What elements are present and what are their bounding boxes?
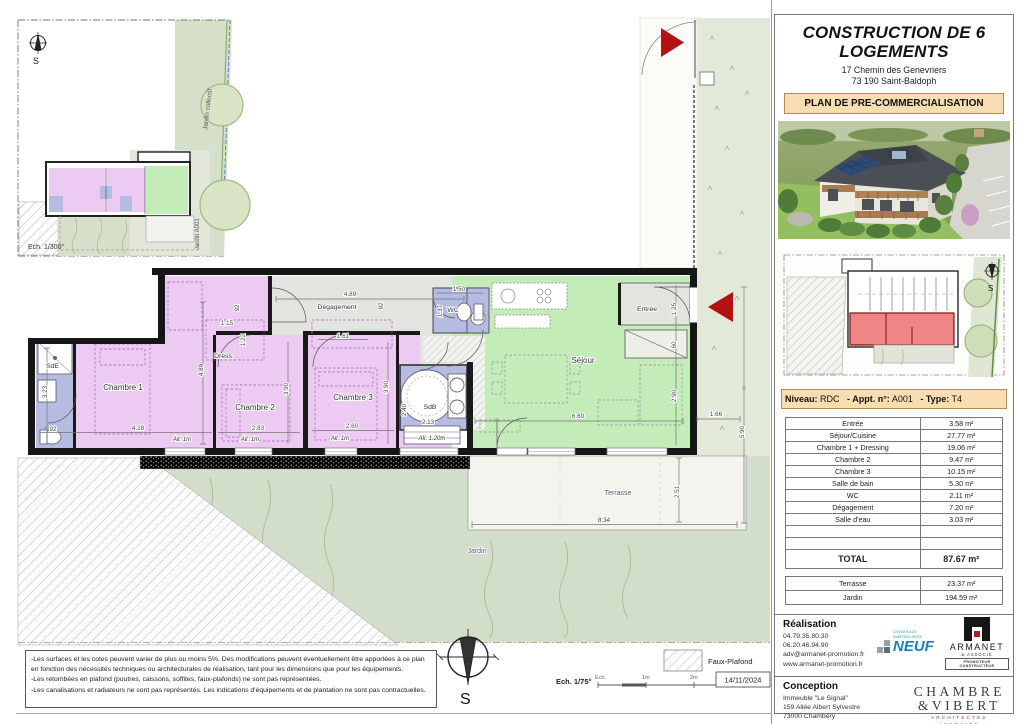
dim-label: 2.13 — [422, 419, 435, 426]
dim-label: 6.60 — [572, 413, 585, 420]
appt-label: - Appt. n°: — [847, 394, 890, 404]
room-name-cell: Chambre 3 — [786, 466, 921, 478]
table-row: Séjour/Cuisine27.77 m² — [786, 430, 1003, 442]
conception-section: Conception Immeuble "Le Signal" 159 Allé… — [775, 676, 1013, 724]
room-name-cell: WC — [786, 490, 921, 502]
room-label-wc: WC — [447, 307, 458, 314]
dim-label: 1.66 — [710, 411, 723, 418]
room-area-cell: 19.06 m² — [920, 442, 1002, 454]
faux-plafond-swatch — [664, 650, 702, 671]
table-row: Salle de bain5.30 m² — [786, 478, 1003, 490]
dim-label: 8.34 — [598, 517, 611, 524]
tree-icon — [200, 180, 250, 230]
neuf-logo-text: NEUF — [893, 640, 934, 654]
table-row: Chambre 1 + Dressing19.06 m² — [786, 442, 1003, 454]
areas-table: Entrée3.58 m² Séjour/Cuisine27.77 m² Cha… — [785, 417, 1003, 569]
address-line2: 73 190 Saint-Baldoph — [775, 76, 1013, 87]
floor-plan-drawing: S Jardin collectif Jardin A001 Ech. 1/30… — [0, 0, 772, 724]
room-area-cell: 3.03 m² — [920, 514, 1002, 526]
dim-label: 3.90 — [283, 382, 290, 395]
site-compass-label: S — [33, 56, 39, 66]
total-label-cell: TOTAL — [786, 550, 921, 569]
room-area-cell: 9.47 m² — [920, 454, 1002, 466]
allege-label: All. 1.20m — [418, 436, 446, 442]
address-line1: 17 Chemin des Genevriers — [775, 65, 1013, 76]
room-label-sdb: SdB — [424, 404, 437, 411]
room-name-cell: Entrée — [786, 418, 921, 430]
project-title-line2: LOGEMENTS — [775, 42, 1013, 61]
project-title-line1: CONSTRUCTION DE 6 — [775, 23, 1013, 42]
dim-label: 4.28 — [132, 425, 145, 432]
table-row: Chambre 29.47 m² — [786, 454, 1003, 466]
niveau-label: Niveau: — [785, 394, 818, 404]
type-value: T4 — [952, 394, 963, 404]
armanet-sub: ASSOCIÉ — [967, 652, 993, 657]
extras-table: Terrasse23.37 m² Jardin194.59 m² — [785, 576, 1003, 605]
highlighted-unit — [850, 313, 954, 345]
armanet-logo-icon — [964, 617, 990, 641]
garden-area: Terrasse Jardin — [18, 456, 770, 645]
table-row: Entrée3.58 m² — [786, 418, 1003, 430]
room-name-cell: Chambre 2 — [786, 454, 921, 466]
room-label-chambre1: Chambre 1 — [103, 383, 143, 392]
plan-type-banner: PLAN DE PRE-COMMERCIALISATION — [784, 93, 1004, 114]
site-scale-label: Ech. 1/300° — [28, 243, 64, 251]
table-row: Terrasse23.37 m² — [786, 577, 1003, 591]
room-label-entree: Entrée — [637, 306, 657, 313]
table-empty-row — [786, 526, 1003, 538]
title-block-panel: CONSTRUCTION DE 6 LOGEMENTS 17 Chemin de… — [774, 14, 1014, 714]
neuf-logo-icon — [877, 639, 892, 653]
dim-label: 4.89 — [344, 291, 357, 298]
terrasse-label: Terrasse — [605, 490, 632, 497]
room-area-cell: 3.58 m² — [920, 418, 1002, 430]
table-row: Chambre 310.15 m² — [786, 466, 1003, 478]
extra-area-cell: 194.59 m² — [920, 591, 1002, 605]
dim-label: 5.90 — [739, 425, 746, 438]
site-plan: S Jardin collectif Jardin A001 Ech. 1/30… — [18, 20, 250, 256]
table-row: Salle d'eau3.03 m² — [786, 514, 1003, 526]
cv-logo-line1: CHAMBRE — [914, 685, 1005, 699]
compass-icon — [29, 32, 47, 54]
dim-label: 1.61 — [337, 333, 350, 340]
room-area-cell: 27.77 m² — [920, 430, 1002, 442]
dim-label: 2.51 — [674, 485, 681, 498]
room-label-sejour: Séjour — [571, 356, 594, 365]
armanet-logo-text: ARMANET — [945, 642, 1009, 652]
faux-plafond-label: Faux-Plafond — [708, 657, 753, 666]
scale-tick-label: 1m — [642, 675, 650, 681]
table-empty-row — [786, 538, 1003, 550]
dim-label: 4.89 — [198, 363, 205, 376]
dim-label: 1.50 — [453, 286, 466, 293]
note-line: -Les canalisations et radiateurs ne sont… — [31, 686, 431, 696]
neuf-logo: GÉNÉRALE IMMOBILIÈRE NEUF — [877, 629, 943, 653]
chambre-vibert-logo: CHAMBRE &VIBERT ARCHITECTES ASSOCIÉS — [914, 685, 1005, 724]
dim-label: 2.40 — [401, 403, 408, 416]
room-entree — [620, 283, 690, 325]
date-label: 14/11/2024 — [725, 676, 762, 685]
allege-label: All. 1m — [172, 437, 191, 443]
room-area-cell: 7.20 m² — [920, 502, 1002, 514]
room-label-dress: Dress. — [214, 353, 234, 360]
dim-label: 2.83 — [252, 425, 265, 432]
table-row: WC2.11 m² — [786, 490, 1003, 502]
project-title: CONSTRUCTION DE 6 LOGEMENTS — [775, 23, 1013, 61]
armanet-logo: ARMANET & ASSOCIÉ PROMOTEUR CONSTRUCTEUR — [945, 617, 1009, 670]
dim-label: 3.23 — [42, 385, 49, 398]
apartment-info-bar: Niveau: RDC - Appt. n°: A001 - Type: T4 — [781, 389, 1007, 409]
project-address: 17 Chemin des Genevriers 73 190 Saint-Ba… — [775, 65, 1013, 87]
room-label-chambre2: Chambre 2 — [235, 403, 275, 412]
room-name-cell: Salle d'eau — [786, 514, 921, 526]
dim-label: 2.60 — [346, 423, 359, 430]
dim-label: 1.37 — [437, 304, 444, 317]
appt-value: A001 — [892, 394, 913, 404]
compass-south-label: S — [460, 691, 471, 708]
scale-tick-label: Ech. — [595, 675, 606, 681]
table-row: Jardin194.59 m² — [786, 591, 1003, 605]
dim-label: 60 — [671, 341, 678, 349]
dim-label: 92 — [234, 304, 241, 312]
armanet-amp: & — [961, 652, 965, 657]
room-area-cell: 5.30 m² — [920, 478, 1002, 490]
room-label-degagement: Dégagement — [318, 304, 357, 311]
dim-label: 1.15 — [221, 320, 234, 327]
cv-logo-line2: &VIBERT — [914, 699, 1005, 713]
allege-label: All. 1m — [240, 437, 259, 443]
note-line: -Les surfaces et les cotes peuvent varie… — [31, 655, 431, 675]
extra-name-cell: Jardin — [786, 591, 921, 605]
allege-label: All. 1m — [330, 436, 349, 442]
jardin-label: Jardin — [467, 548, 486, 555]
key-plan: S — [778, 249, 1010, 381]
dim-label: 1.22 — [240, 333, 247, 346]
building-render — [778, 121, 1010, 239]
room-label-chambre3: Chambre 3 — [333, 393, 373, 402]
niveau-value: RDC — [820, 394, 840, 404]
room-area-cell: 10.15 m² — [920, 466, 1002, 478]
scale-tick-label: 2m — [690, 675, 698, 681]
total-value-cell: 87.67 m² — [920, 550, 1002, 569]
scale-label: Ech. 1/75° — [556, 677, 592, 686]
room-name-cell: Séjour/Cuisine — [786, 430, 921, 442]
room-name-cell: Chambre 1 + Dressing — [786, 442, 921, 454]
jardin-unit-label: Jardin A001 — [195, 218, 201, 250]
dim-label: 92 — [49, 426, 57, 433]
room-area-cell: 2.11 m² — [920, 490, 1002, 502]
armanet-tagline: PROMOTEUR CONSTRUCTEUR — [945, 658, 1009, 670]
table-row: Dégagement7.20 m² — [786, 502, 1003, 514]
room-label-sde: SdE — [46, 363, 59, 370]
room-name-cell: Dégagement — [786, 502, 921, 514]
dim-label: 1.25 — [671, 302, 678, 315]
extra-area-cell: 23.37 m² — [920, 577, 1002, 591]
plan-sheet: S Jardin collectif Jardin A001 Ech. 1/30… — [0, 0, 1024, 724]
keyplan-compass-label: S — [988, 284, 993, 293]
extra-name-cell: Terrasse — [786, 577, 921, 591]
dim-label: 92 — [378, 302, 385, 310]
realisation-section: Réalisation 04.79.35.80.30 06.20.46.94.9… — [775, 614, 1013, 676]
dim-label: 3.90 — [383, 380, 390, 393]
note-line: -Les retombées en plafond (poutres, cais… — [31, 675, 431, 685]
room-name-cell: Salle de bain — [786, 478, 921, 490]
type-label: - Type: — [920, 394, 949, 404]
areas-table-wrap: Entrée3.58 m² Séjour/Cuisine27.77 m² Cha… — [785, 417, 1003, 605]
notes-box: -Les surfaces et les cotes peuvent varie… — [25, 650, 437, 708]
total-row: TOTAL87.67 m² — [786, 550, 1003, 569]
dim-label: 2.90 — [671, 389, 678, 402]
